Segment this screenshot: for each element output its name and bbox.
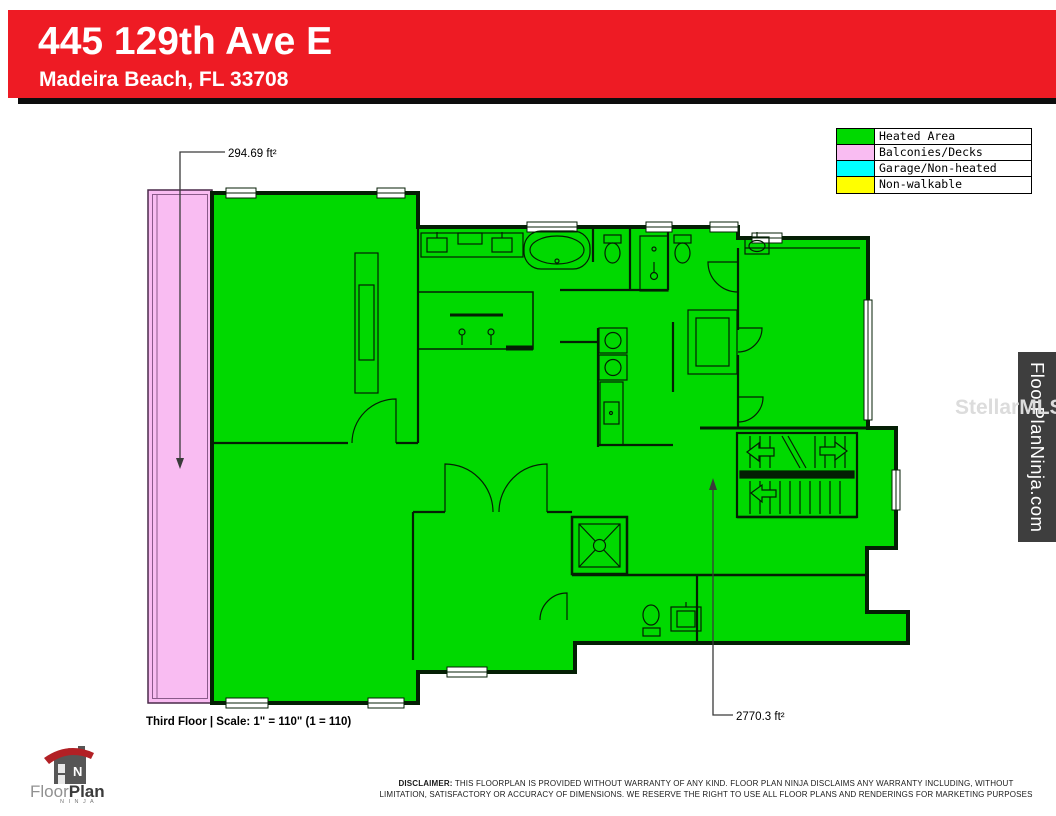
balconies-swatch	[837, 145, 875, 161]
disclaimer-label: DISCLAIMER:	[399, 779, 453, 788]
property-address: 445 129th Ave E	[38, 20, 332, 64]
floorplan-ninja-logo: N FloorPlan N I N J A	[30, 740, 140, 805]
balconies-label: Balconies/Decks	[875, 145, 1031, 161]
property-city-state: Madeira Beach, FL 33708	[39, 68, 288, 92]
house-logo-icon: N	[40, 740, 98, 786]
disclaimer-line1: THIS FLOORPLAN IS PROVIDED WITHOUT WARRA…	[453, 779, 1014, 788]
disclaimer-text: DISCLAIMER: THIS FLOORPLAN IS PROVIDED W…	[368, 779, 1044, 800]
legend-row-nonwalkable: Non-walkable	[837, 177, 1031, 193]
legend-row-garage: Garage/Non-heated	[837, 161, 1031, 177]
svg-text:N: N	[73, 764, 82, 779]
legend-row-balconies: Balconies/Decks	[837, 145, 1031, 161]
floorplanninja-site-banner: FloorPlanNinja.com	[1018, 352, 1056, 542]
balcony-area-value: 294.69 ft²	[228, 148, 277, 160]
logo-wordmark: FloorPlan	[30, 784, 140, 799]
floor-plan-drawing: 294.69 ft² 2770.3 ft²	[0, 0, 1056, 816]
heated-area-swatch	[837, 129, 875, 145]
disclaimer-line2: LIMITATION, SATISFACTORY OR ACCURACY OF …	[379, 790, 1032, 799]
nonwalkable-swatch	[837, 177, 875, 193]
heated-area-label: Heated Area	[875, 129, 1031, 145]
floor-scale-label: Third Floor | Scale: 1" = 110" (1 = 110)	[146, 716, 351, 728]
nonwalkable-label: Non-walkable	[875, 177, 1031, 193]
header-banner: 445 129th Ave E Madeira Beach, FL 33708	[8, 10, 1056, 98]
legend: Heated Area Balconies/Decks Garage/Non-h…	[836, 128, 1032, 194]
garage-label: Garage/Non-heated	[875, 161, 1031, 177]
legend-row-heated: Heated Area	[837, 129, 1031, 145]
floorplan-page: { "header": { "address": "445 129th Ave …	[0, 0, 1056, 816]
heated-area-value: 2770.3 ft²	[736, 711, 785, 723]
garage-swatch	[837, 161, 875, 177]
stellar-mls-watermark: StellarMLS	[955, 396, 1056, 420]
